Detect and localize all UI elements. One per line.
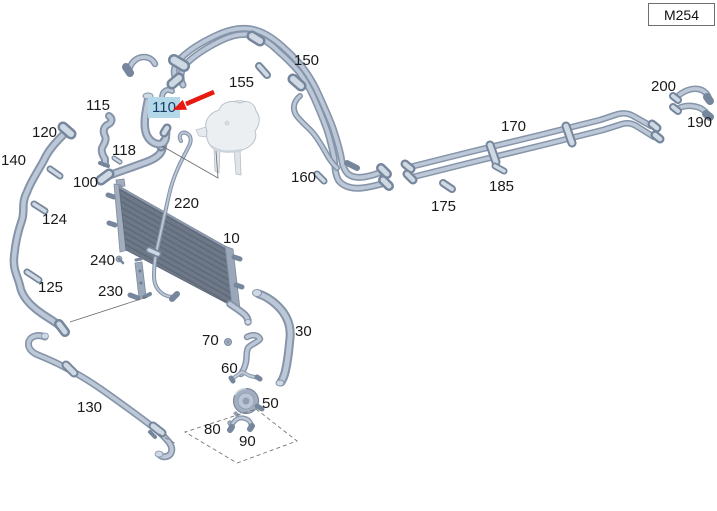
part-label-170[interactable]: 170 — [501, 119, 526, 135]
part-label-200[interactable]: 200 — [651, 79, 676, 95]
expansion-tank-drawing[interactable] — [196, 101, 259, 176]
bolt-240-drawing[interactable] — [116, 256, 123, 263]
part-label-150[interactable]: 150 — [294, 53, 319, 69]
part-label-highlighted[interactable]: 110 — [148, 97, 180, 118]
part-label-30[interactable]: 30 — [295, 324, 312, 340]
part-label-190[interactable]: 190 — [687, 115, 712, 131]
model-code-box: M254 — [648, 3, 715, 26]
part-label-240[interactable]: 240 — [90, 253, 115, 269]
part-label-120[interactable]: 120 — [32, 125, 57, 141]
part-label-160[interactable]: 160 — [291, 170, 316, 186]
part-label-50[interactable]: 50 — [262, 396, 279, 412]
pump-50-drawing[interactable] — [233, 388, 262, 417]
bracket-230-drawing[interactable] — [130, 259, 150, 298]
part-label-155[interactable]: 155 — [229, 75, 254, 91]
part-label-118[interactable]: 118 — [112, 143, 136, 159]
pipe-170-drawing[interactable] — [405, 113, 660, 180]
part-label-230[interactable]: 230 — [98, 284, 123, 300]
clip-160-drawing[interactable] — [317, 174, 324, 181]
clip-140-drawing[interactable] — [50, 169, 60, 176]
part-label-10[interactable]: 10 — [223, 231, 240, 247]
part-label-80[interactable]: 80 — [204, 422, 221, 438]
pipe-200-drawing[interactable] — [673, 89, 710, 101]
bracket-115-drawing[interactable] — [100, 116, 111, 166]
part-label-220[interactable]: 220 — [174, 196, 199, 212]
part-label-100[interactable]: 100 — [73, 175, 98, 191]
clip-175-drawing[interactable] — [443, 183, 452, 189]
clip-155-drawing[interactable] — [259, 66, 267, 75]
nut-70-drawing[interactable] — [225, 339, 232, 346]
part-label-125[interactable]: 125 — [38, 280, 63, 296]
hose-90-drawing[interactable] — [230, 418, 252, 430]
part-label-124[interactable]: 124 — [42, 212, 67, 228]
part-label-140[interactable]: 140 — [1, 153, 26, 169]
part-label-130[interactable]: 130 — [77, 400, 102, 416]
part-label-175[interactable]: 175 — [431, 199, 456, 215]
parts-diagram-viewer: 1501551151201401181001602201012424023012… — [0, 0, 717, 511]
clip-185-drawing[interactable] — [495, 166, 504, 171]
hose-130-drawing[interactable] — [28, 333, 171, 457]
mounting-plane-outline — [159, 409, 297, 463]
part-label-60[interactable]: 60 — [221, 361, 238, 377]
part-label-90[interactable]: 90 — [239, 434, 256, 450]
part-label-70[interactable]: 70 — [202, 333, 219, 349]
clip-124-drawing[interactable] — [34, 204, 45, 211]
part-label-185[interactable]: 185 — [489, 179, 514, 195]
part-label-115[interactable]: 115 — [86, 98, 110, 114]
